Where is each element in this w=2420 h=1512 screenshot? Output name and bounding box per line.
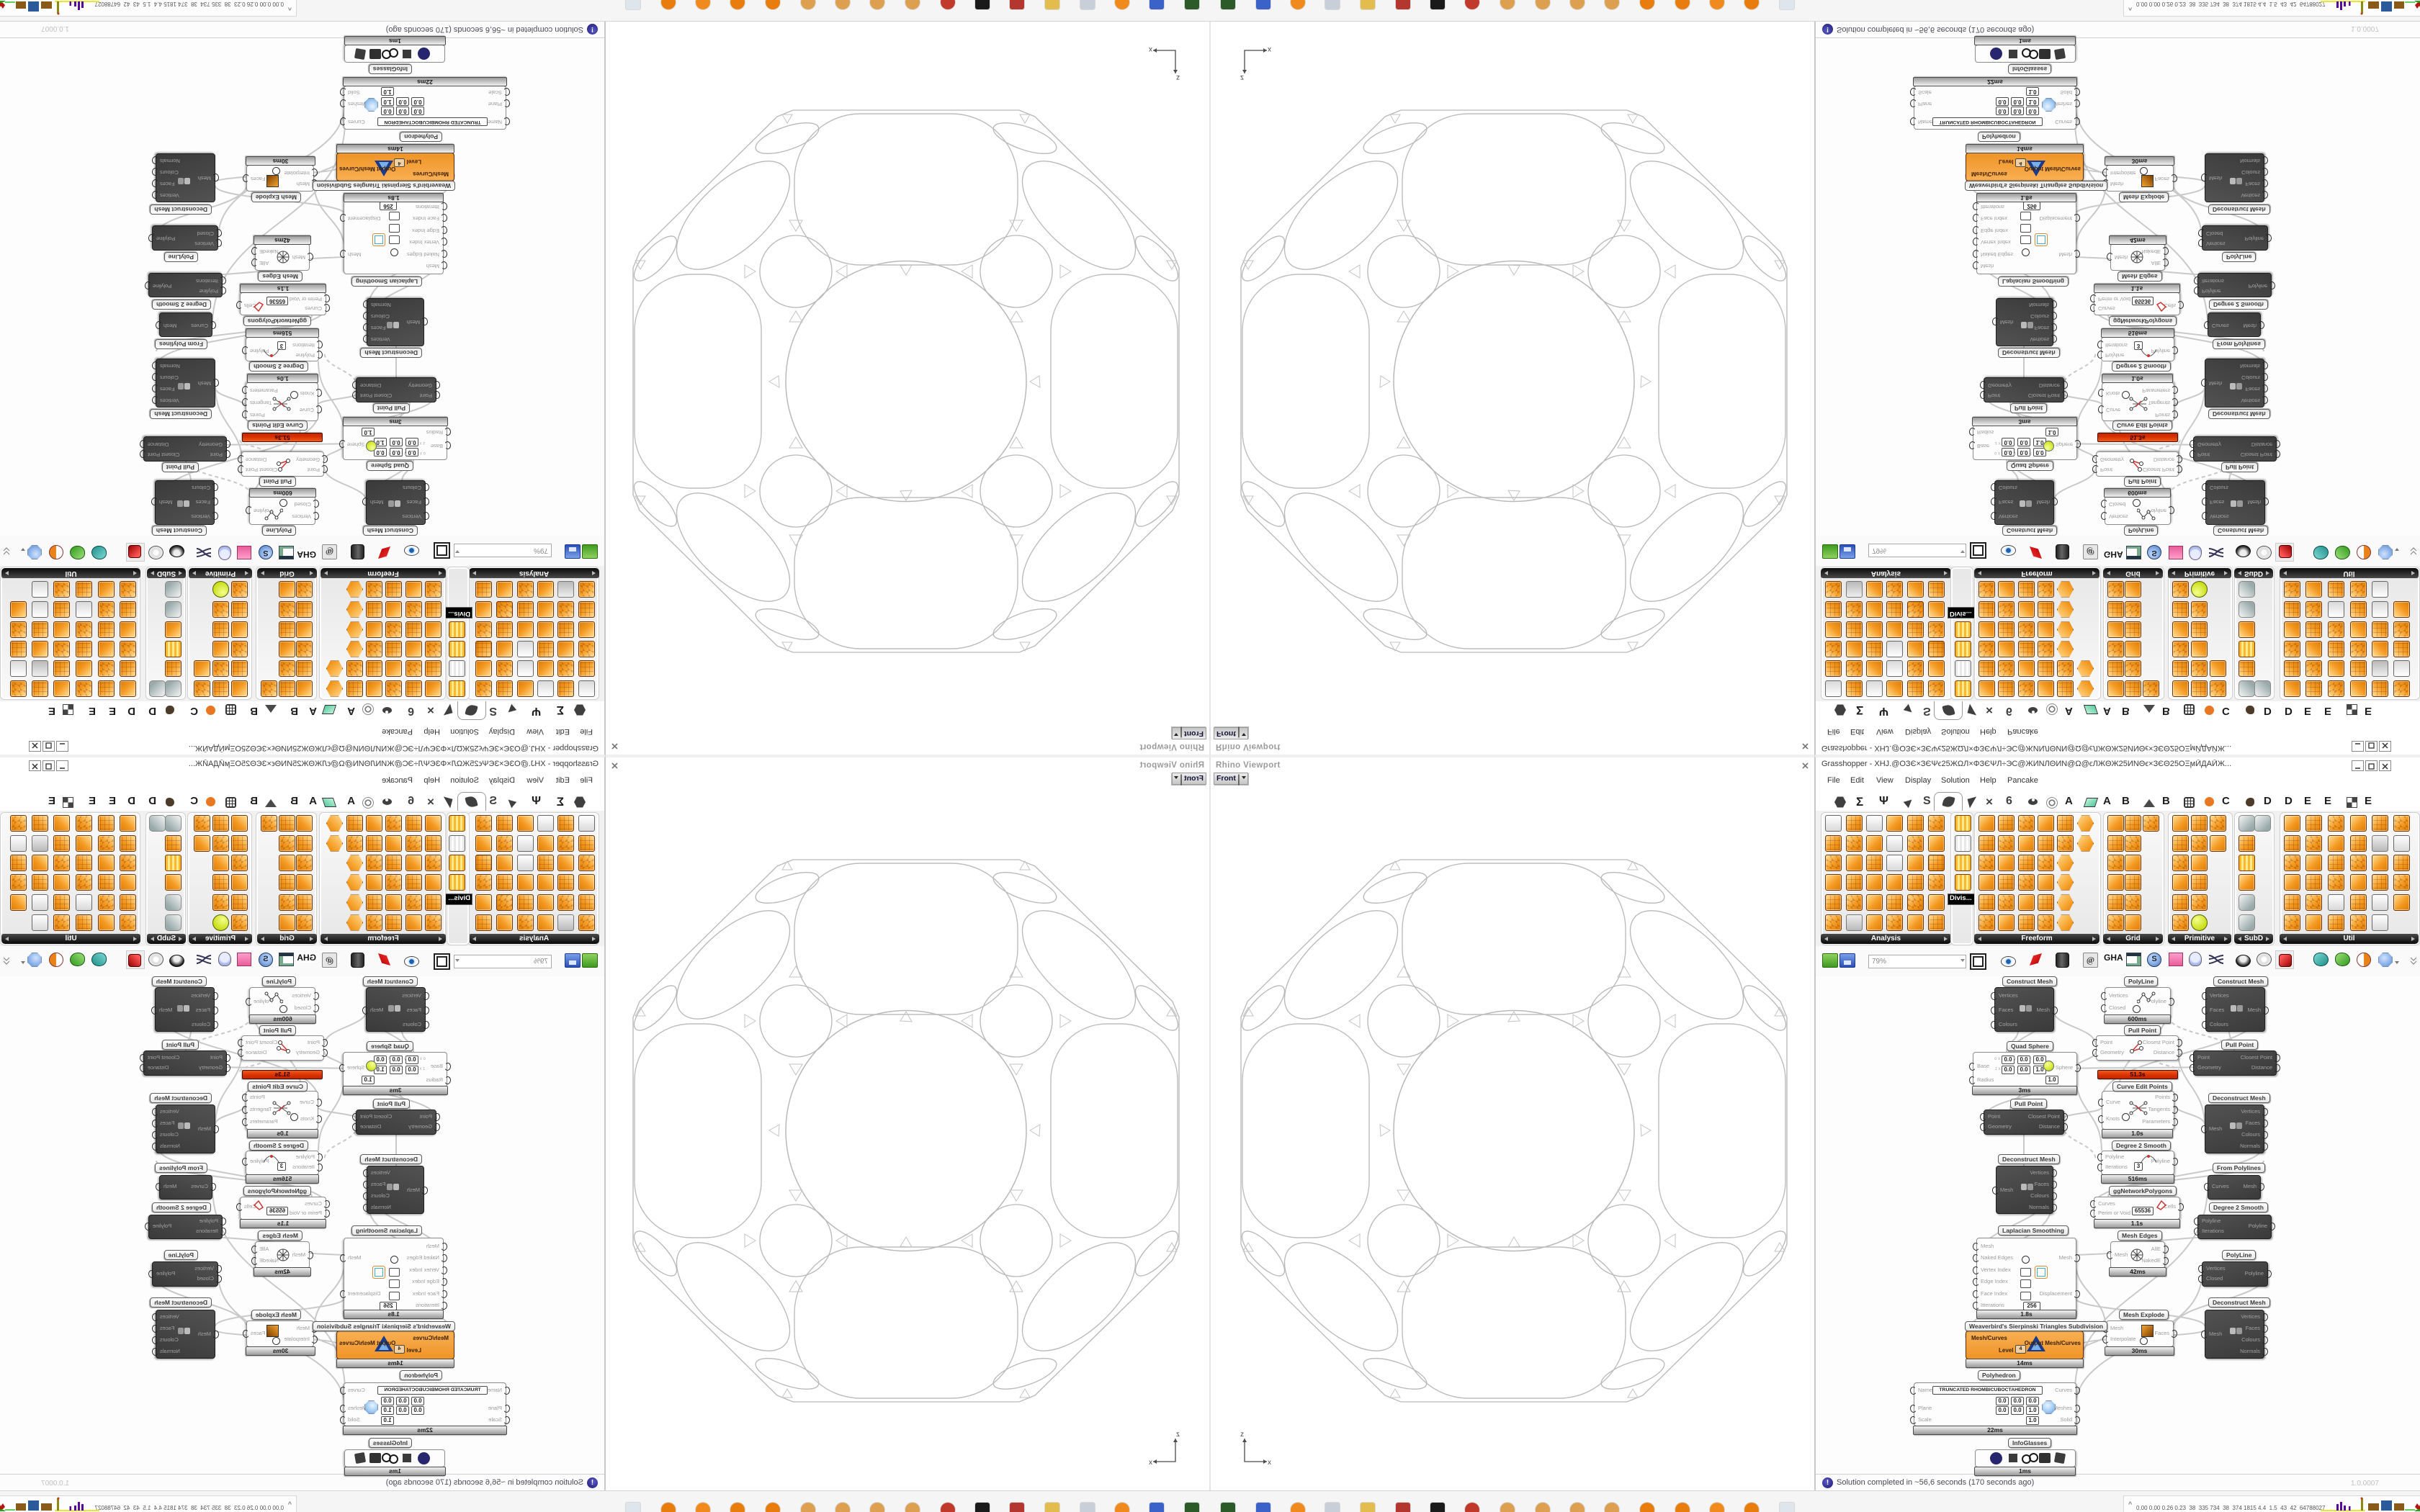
svg-text:z: z xyxy=(1240,73,1244,81)
svg-text:x: x xyxy=(1268,46,1271,53)
svg-text:z: z xyxy=(1176,73,1180,81)
svg-text:z: z xyxy=(1240,1431,1244,1439)
svg-text:z: z xyxy=(1176,1431,1180,1439)
svg-text:x: x xyxy=(1268,1459,1271,1466)
svg-text:x: x xyxy=(1149,46,1152,53)
svg-text:x: x xyxy=(1149,1459,1152,1466)
